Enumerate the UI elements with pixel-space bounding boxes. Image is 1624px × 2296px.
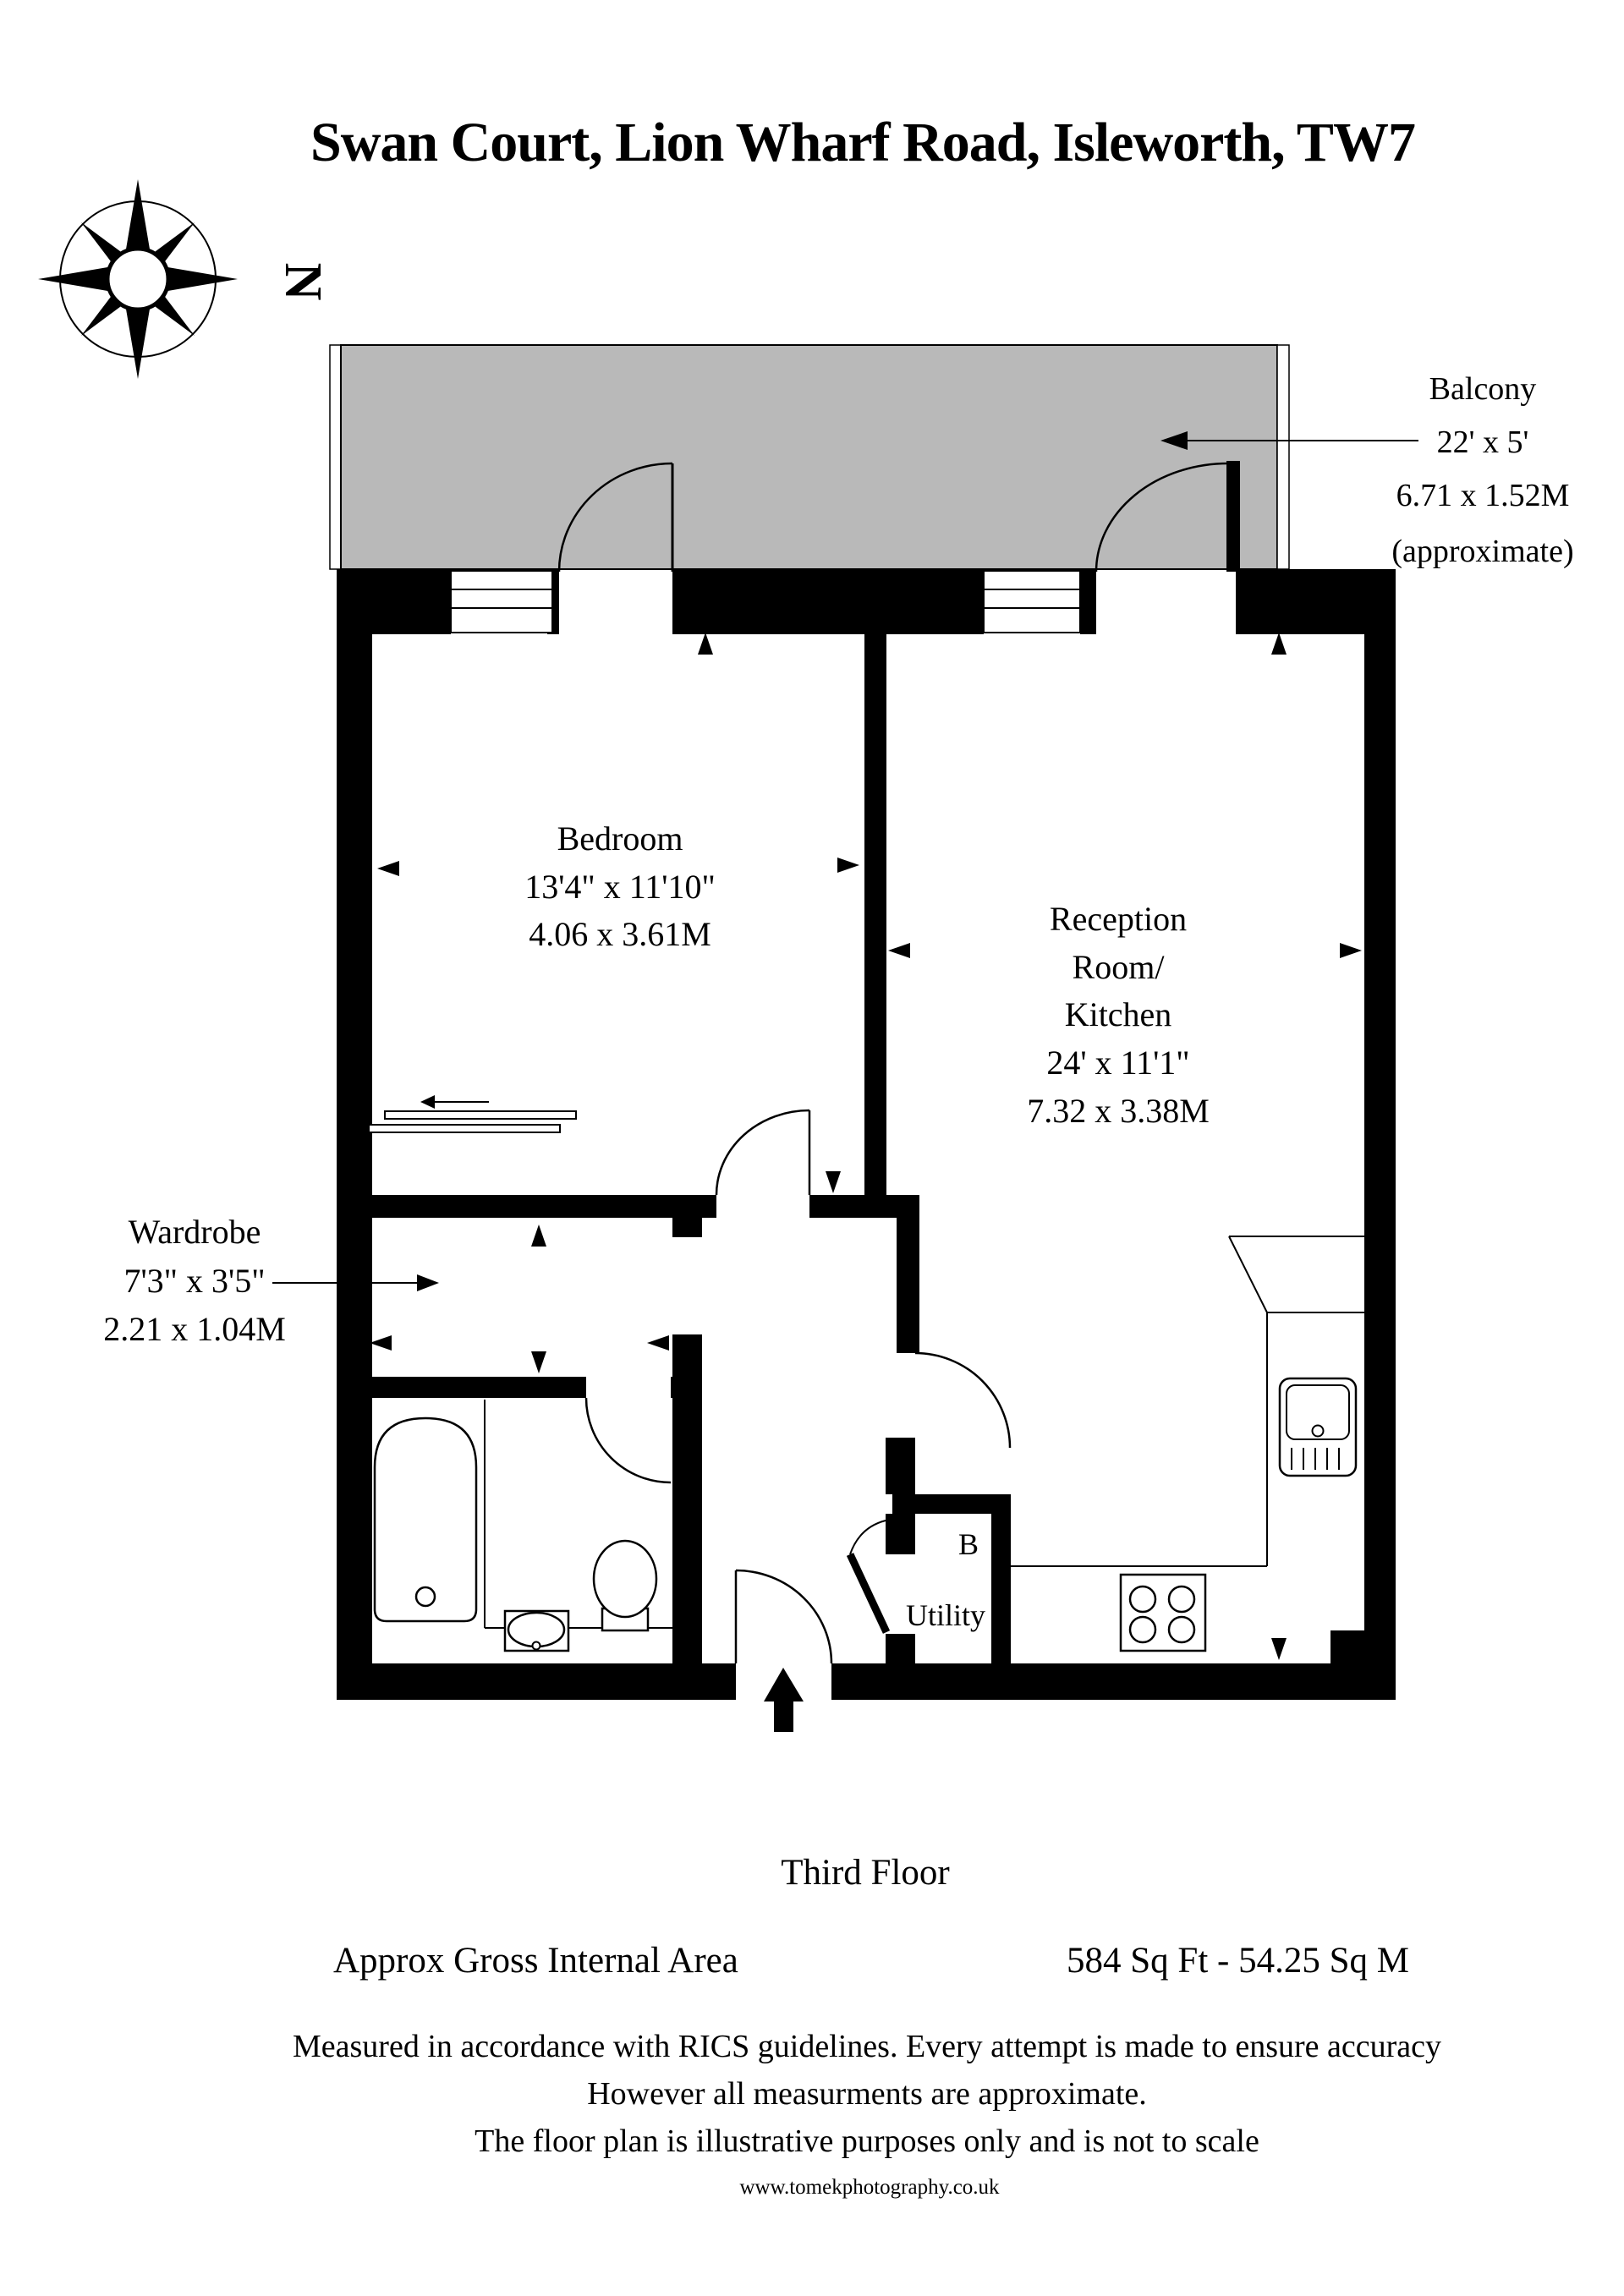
balcony-dimensions-ft: 22' x 5' bbox=[1437, 425, 1529, 460]
compass-hub bbox=[107, 249, 168, 310]
disclaimer-line1: Measured in accordance with RICS guideli… bbox=[293, 2029, 1441, 2064]
wall-segment bbox=[671, 1377, 702, 1398]
balcony-note: (approximate) bbox=[1391, 534, 1573, 569]
area-label: Approx Gross Internal Area bbox=[333, 1941, 738, 1981]
balcony-area bbox=[330, 345, 1289, 569]
bedroom-arrow-left-icon bbox=[377, 861, 399, 876]
sliding-doors bbox=[369, 1095, 576, 1132]
page-title: Swan Court, Lion Wharf Road, Isleworth, … bbox=[310, 112, 1415, 173]
bedroom-dimensions-m: 4.06 x 3.61M bbox=[529, 915, 711, 953]
wall-segment bbox=[809, 1195, 919, 1218]
utility-boiler-label: B bbox=[958, 1527, 979, 1561]
utility-door-leaf bbox=[850, 1554, 886, 1632]
wall-segment bbox=[337, 1195, 716, 1218]
toilet bbox=[594, 1541, 656, 1617]
bedroom-door-arc bbox=[716, 1110, 809, 1195]
floorplan-canvas: Swan Court, Lion Wharf Road, Isleworth, … bbox=[0, 0, 1624, 2296]
kitchen-fixtures bbox=[1011, 1236, 1364, 1651]
wall-segment bbox=[672, 1218, 702, 1237]
reception-dimensions-m: 7.32 x 3.38M bbox=[1027, 1092, 1210, 1130]
wall-divider-bedroom-reception bbox=[864, 634, 886, 1195]
reception-arrow-down-icon bbox=[1271, 1638, 1287, 1660]
wall-utility-left bbox=[886, 1634, 915, 1663]
reception-arrow-up-icon bbox=[1271, 633, 1287, 655]
bathroom-door-arc bbox=[586, 1398, 671, 1482]
floor-label: Third Floor bbox=[781, 1853, 949, 1893]
utility-door-arc bbox=[850, 1521, 886, 1554]
kitchen-sink-plug bbox=[1313, 1426, 1324, 1437]
reception-arrow-left-icon bbox=[888, 943, 910, 958]
wall-segment-bottom bbox=[337, 1663, 736, 1700]
hob-ring bbox=[1130, 1617, 1155, 1642]
bedroom-arrow-down-icon bbox=[826, 1171, 841, 1193]
disclaimer-line3: The floor plan is illustrative purposes … bbox=[475, 2123, 1259, 2159]
entrance-door-arc bbox=[736, 1570, 831, 1663]
wardrobe-dimensions-ft: 7'3" x 3'5" bbox=[123, 1262, 265, 1300]
balcony-floor bbox=[341, 345, 1277, 569]
wall-utility-right bbox=[991, 1514, 1011, 1663]
wall-segment-bottom bbox=[831, 1663, 1330, 1700]
bedroom-label: Bedroom bbox=[557, 819, 683, 858]
floorplan-page: Swan Court, Lion Wharf Road, Isleworth, … bbox=[0, 0, 1624, 2296]
wall-segment-left bbox=[337, 569, 372, 1700]
wardrobe-dimensions-m: 2.21 x 1.04M bbox=[103, 1310, 286, 1348]
balcony-dimensions-m: 6.71 x 1.52M bbox=[1396, 478, 1570, 513]
wall-utility-top bbox=[892, 1494, 1011, 1514]
bathroom-fixtures bbox=[375, 1400, 672, 1651]
bedroom-arrow-up-icon bbox=[698, 633, 713, 655]
reception-balcony-door-leaf bbox=[1226, 461, 1240, 572]
reception-window bbox=[984, 571, 1080, 633]
disclaimer-line2: However all measurments are approximate. bbox=[587, 2076, 1147, 2112]
balcony-rail-left bbox=[330, 345, 341, 569]
utility-label: Utility bbox=[906, 1598, 985, 1632]
wall-utility-stub bbox=[886, 1438, 915, 1494]
sliding-door-panel bbox=[385, 1111, 576, 1119]
wall-segment-corner bbox=[1330, 1630, 1396, 1700]
wall-utility-left bbox=[886, 1514, 915, 1554]
reception-label-line1: Reception bbox=[1050, 900, 1187, 938]
area-value: 584 Sq Ft - 54.25 Sq M bbox=[1067, 1941, 1409, 1981]
wall-segment bbox=[1080, 569, 1096, 634]
reception-door-arc bbox=[915, 1353, 1010, 1448]
wall-segment bbox=[672, 569, 984, 634]
bedroom-dimensions-ft: 13'4" x 11'10" bbox=[524, 868, 716, 906]
wardrobe-arrow-up-icon bbox=[531, 1225, 546, 1247]
entrance-arrow-head bbox=[764, 1668, 804, 1701]
wardrobe-arrow-down-icon bbox=[531, 1351, 546, 1373]
reception-arrow-right-icon bbox=[1340, 943, 1362, 958]
reception-label-line3: Kitchen bbox=[1065, 995, 1172, 1033]
website-link: www.tomekphotography.co.uk bbox=[739, 2176, 1000, 2199]
wardrobe-arrow-left-icon bbox=[370, 1335, 392, 1351]
wardrobe-leader-arrow-icon bbox=[417, 1274, 439, 1291]
wall-segment bbox=[1236, 569, 1396, 634]
balcony-label: Balcony bbox=[1429, 371, 1537, 407]
entrance-arrow-stem bbox=[774, 1700, 793, 1732]
wardrobe-arrow-right-icon bbox=[647, 1335, 669, 1351]
wall-divider-hall-reception bbox=[897, 1218, 919, 1353]
wardrobe-label: Wardrobe bbox=[129, 1213, 261, 1251]
hob-ring bbox=[1169, 1617, 1194, 1642]
entrance-arrow bbox=[764, 1668, 804, 1732]
wall-segment-right bbox=[1364, 634, 1396, 1630]
compass-rose-icon: N bbox=[38, 179, 332, 379]
sliding-door-panel bbox=[369, 1125, 560, 1132]
bedroom-window bbox=[451, 571, 552, 633]
reception-dimensions-ft: 24' x 11'1" bbox=[1046, 1044, 1189, 1082]
hob-ring bbox=[1169, 1586, 1194, 1612]
hob-ring bbox=[1130, 1586, 1155, 1612]
reception-label-line2: Room/ bbox=[1073, 948, 1166, 986]
counter-edge-diagonal bbox=[1229, 1236, 1267, 1312]
bedroom-arrow-right-icon bbox=[837, 858, 859, 873]
basin-plug bbox=[533, 1642, 540, 1650]
wall-segment bbox=[337, 1377, 586, 1398]
footer: Third Floor Approx Gross Internal Area 5… bbox=[293, 1853, 1441, 2199]
bath-plug bbox=[416, 1587, 435, 1606]
north-indicator: N bbox=[274, 263, 332, 301]
balcony-rail-right bbox=[1277, 345, 1289, 569]
